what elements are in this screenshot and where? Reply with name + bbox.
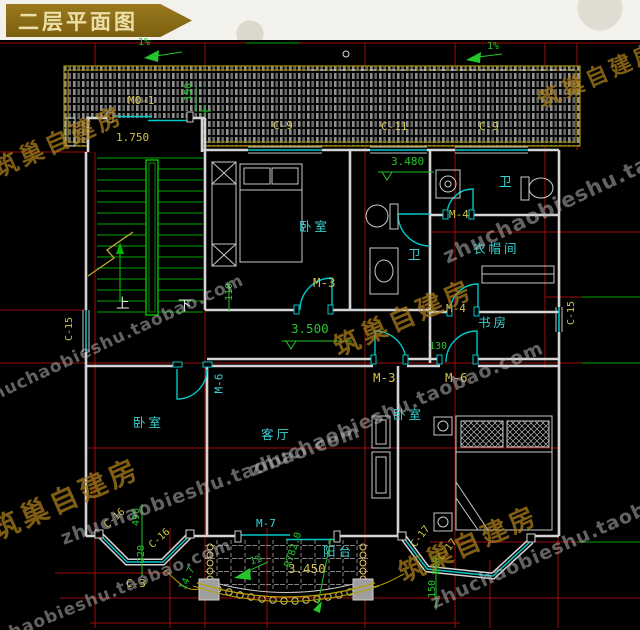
door-label-m3-1: M-3 <box>313 277 336 290</box>
room-label-bedroom-2: 卧室 <box>133 417 164 430</box>
slope-label-right: 1% <box>487 42 499 52</box>
level-3480: 3.480 <box>391 156 424 167</box>
window-label-c15-right: C-15 <box>567 301 577 325</box>
dim-110: 110 <box>225 283 235 301</box>
dim-490: 490 <box>132 508 142 526</box>
room-label-bathroom-center: 卫 <box>408 249 424 262</box>
dim-130: 130 <box>429 342 447 352</box>
floor-plan-drawing <box>0 0 640 630</box>
door-label-m3-2: M-3 <box>373 372 396 385</box>
floor-plan-page: 二层平面图 <box>0 0 640 630</box>
door-label-m6-2: M-6 <box>445 372 468 385</box>
slope-label-left: 1% <box>138 38 150 48</box>
room-label-cloakroom: 衣帽间 <box>473 243 520 256</box>
room-label-balcony: 阳台 <box>323 546 354 559</box>
door-label-m0-1: MO-1 <box>128 95 155 106</box>
door-label-m4-1: M-4 <box>449 209 469 220</box>
room-label-study: 书房 <box>478 317 509 330</box>
dim-150-top: 150 <box>184 83 194 101</box>
door-label-m6-1: M-6 <box>213 374 224 394</box>
room-label-bedroom-1: 卧室 <box>299 221 330 234</box>
dim-220-right: 220 <box>432 557 442 575</box>
window-label-c9-right: C-9 <box>479 121 499 132</box>
door-label-m7: M-7 <box>256 518 276 529</box>
staircase <box>88 158 203 315</box>
room-label-bathroom-right: 卫 <box>499 176 515 189</box>
level-3500: 3.500 <box>291 323 329 336</box>
dim-150-right: 150 <box>428 580 438 598</box>
balcony-structure <box>165 540 404 604</box>
stairs-up-label: 上 <box>116 298 133 312</box>
dim-1750: 1.750 <box>116 132 149 143</box>
window-label-c9-left: C-9 <box>273 120 293 131</box>
stairs-down-label: 下 <box>178 300 195 314</box>
window-label-c3: C-3 <box>126 578 146 589</box>
dim-220-left: 220 <box>137 545 147 563</box>
window-label-c11: C-11 <box>381 121 408 132</box>
door-label-m4-2: M-4 <box>446 303 466 314</box>
room-label-living: 客厅 <box>261 429 292 442</box>
room-label-bedroom-3: 卧室 <box>393 409 424 422</box>
window-label-c15-left: C-15 <box>65 317 75 341</box>
